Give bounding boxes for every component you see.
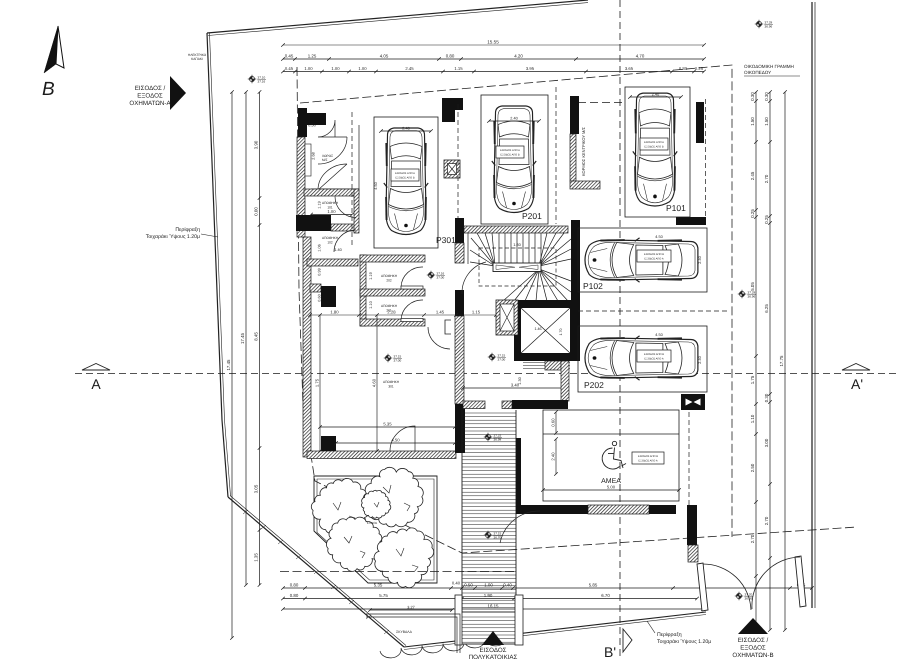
svg-text:3.95: 3.95 [526, 66, 535, 71]
svg-text:2.50: 2.50 [750, 463, 755, 472]
svg-text:ΠΟΛΥΚΑΤΟΙΚΙΑΣ: ΠΟΛΥΚΑΤΟΙΚΙΑΣ [469, 654, 518, 659]
svg-text:A': A' [851, 376, 863, 392]
svg-text:1.25: 1.25 [308, 53, 317, 58]
svg-text:Περίφραξη: Περίφραξη [657, 632, 682, 638]
svg-text:0.45: 0.45 [285, 66, 294, 71]
svg-text:0.50: 0.50 [308, 123, 317, 128]
svg-text:4.20: 4.20 [514, 53, 523, 58]
svg-text:0.30: 0.30 [764, 92, 769, 101]
svg-text:4.70: 4.70 [636, 53, 645, 58]
svg-text:1.60: 1.60 [513, 243, 520, 247]
svg-text:P202: P202 [584, 380, 604, 390]
svg-text:Τοιχαράκι Ύψους 1.20μ: Τοιχαράκι Ύψους 1.20μ [146, 234, 200, 240]
svg-text:ΑΠΟΘΗΚΗ: ΑΠΟΘΗΚΗ [381, 304, 398, 308]
svg-text:1.35: 1.35 [254, 553, 259, 562]
svg-text:2.68: 2.68 [312, 152, 316, 159]
svg-text:0.60: 0.60 [550, 418, 555, 427]
svg-text:3.05: 3.05 [254, 484, 259, 493]
svg-text:ΕΞΟΔΟΣ: ΕΞΟΔΟΣ [740, 645, 766, 652]
svg-text:2.40: 2.40 [550, 452, 555, 461]
svg-text:1.50: 1.50 [750, 117, 755, 126]
svg-text:17.75: 17.75 [779, 355, 784, 367]
svg-text:0.40: 0.40 [503, 582, 512, 587]
svg-text:37.00: 37.00 [498, 357, 506, 361]
svg-text:ΕΙΣΟΔΟΣ: ΕΙΣΟΔΟΣ [480, 647, 507, 654]
svg-text:P102: P102 [583, 281, 603, 291]
svg-text:1.10: 1.10 [369, 301, 373, 308]
svg-text:6.70: 6.70 [601, 593, 610, 598]
svg-text:0.80: 0.80 [290, 582, 299, 587]
svg-text:ΕΞΟΔΟΣ: ΕΞΟΔΟΣ [137, 93, 163, 100]
svg-text:0.99: 0.99 [318, 268, 322, 275]
svg-text:1.06: 1.06 [318, 244, 322, 251]
svg-text:2.45: 2.45 [405, 66, 414, 71]
svg-text:1.15: 1.15 [454, 66, 463, 71]
svg-text:0.50: 0.50 [464, 582, 473, 587]
svg-text:4.05: 4.05 [380, 53, 389, 58]
svg-text:B: B [42, 79, 55, 100]
svg-text:1.90: 1.90 [484, 593, 493, 598]
svg-text:ΚΑΠΑΚΙ: ΚΑΠΑΚΙ [191, 57, 203, 61]
svg-text:0.60: 0.60 [318, 294, 322, 301]
svg-text:2.40: 2.40 [652, 93, 659, 97]
svg-text:1.46: 1.46 [535, 327, 542, 331]
svg-text:1.00: 1.00 [484, 582, 493, 587]
svg-text:3.00: 3.00 [764, 438, 769, 447]
svg-text:ΟΧΗΜΑΤΩΝ-Β: ΟΧΗΜΑΤΩΝ-Β [732, 652, 773, 659]
svg-text:15.55: 15.55 [487, 39, 499, 44]
svg-text:1.19: 1.19 [369, 272, 373, 279]
svg-text:Τοιχαράκι Ύψους 1.20μ: Τοιχαράκι Ύψους 1.20μ [657, 639, 711, 645]
svg-text:ΕΞΟΔΟΣ ΑΠΟ Α: ΕΞΟΔΟΣ ΑΠΟ Α [638, 460, 657, 463]
svg-text:Περίφραξη: Περίφραξη [175, 227, 200, 233]
svg-text:ΕΙΣΟΔΟΣ /: ΕΙΣΟΔΟΣ / [738, 637, 769, 644]
svg-text:0.30: 0.30 [750, 92, 755, 101]
svg-text:ΕΙΣΟΔΟΣ ΑΠΟ Β: ΕΙΣΟΔΟΣ ΑΠΟ Β [644, 253, 664, 256]
svg-text:36.96: 36.96 [765, 24, 773, 28]
svg-text:1.00: 1.00 [358, 66, 367, 71]
svg-text:ΕΞΟΔΟΣ ΑΠΟ Β: ΕΞΟΔΟΣ ΑΠΟ Β [500, 154, 520, 157]
svg-text:ΕΞΟΔΟΣ ΑΠΟ Α: ΕΞΟΔΟΣ ΑΠΟ Α [644, 258, 663, 261]
svg-text:ΚΗΠΟΣ: ΚΗΠΟΣ [367, 521, 378, 525]
svg-text:ΕΞΟΔΟΣ ΑΠΟ Β: ΕΞΟΔΟΣ ΑΠΟ Β [644, 146, 664, 149]
svg-text:ΕΙΣΟΔΟΣ ΑΠΟ Β: ΕΙΣΟΔΟΣ ΑΠΟ Β [644, 353, 664, 356]
svg-text:ΟΙΚΟΠΕΔΟΥ: ΟΙΚΟΠΕΔΟΥ [744, 70, 771, 75]
svg-text:ΕΞΟΔΟΣ ΑΠΟ Β: ΕΞΟΔΟΣ ΑΠΟ Β [395, 177, 415, 180]
svg-text:36.95: 36.95 [745, 596, 753, 600]
svg-text:202: 202 [386, 279, 392, 283]
svg-text:ΕΙΣΟΔΟΣ /: ΕΙΣΟΔΟΣ / [135, 85, 166, 92]
svg-text:4.50: 4.50 [655, 235, 662, 239]
svg-text:0.25: 0.25 [750, 209, 755, 218]
svg-text:1.15: 1.15 [472, 310, 481, 315]
svg-text:0.30: 0.30 [764, 393, 769, 402]
svg-text:5.35: 5.35 [383, 422, 392, 427]
svg-text:ΟΧΗΜΑΤΩΝ-Α: ΟΧΗΜΑΤΩΝ-Α [129, 100, 171, 107]
svg-text:0.40: 0.40 [452, 581, 461, 586]
svg-text:ΑΠΟΘΗΚΗ: ΑΠΟΘΗΚΗ [322, 236, 339, 240]
svg-text:3.27: 3.27 [407, 606, 414, 610]
svg-text:5.85: 5.85 [589, 582, 598, 587]
svg-text:301: 301 [388, 385, 394, 389]
svg-text:ΣΚΥΒΑΛΑ: ΣΚΥΒΑΛΑ [396, 630, 412, 634]
svg-text:1.70: 1.70 [559, 329, 563, 336]
svg-text:0.45: 0.45 [285, 53, 294, 58]
svg-text:2.40: 2.40 [698, 356, 702, 363]
svg-text:5.00: 5.00 [607, 485, 616, 490]
svg-text:17.45: 17.45 [226, 359, 231, 371]
svg-text:37.16: 37.16 [258, 79, 266, 83]
svg-text:ΑΠΟΘΗΚΗ: ΑΠΟΘΗΚΗ [383, 380, 400, 384]
svg-text:6.25: 6.25 [764, 304, 769, 313]
svg-text:3.40: 3.40 [511, 383, 520, 388]
svg-text:0.25: 0.25 [764, 215, 769, 224]
svg-text:1.45: 1.45 [436, 310, 445, 315]
svg-text:ΟΙΚΟΔΟΜΙΚΗ ΓΡΑΜΜΗ: ΟΙΚΟΔΟΜΙΚΗ ΓΡΑΜΜΗ [744, 64, 794, 69]
svg-text:P101: P101 [666, 203, 686, 213]
svg-text:2.70: 2.70 [750, 534, 755, 543]
svg-text:1.10: 1.10 [750, 414, 755, 423]
svg-text:1.75: 1.75 [750, 375, 755, 384]
svg-text:4.50: 4.50 [391, 438, 400, 443]
svg-text:0.80: 0.80 [446, 53, 455, 58]
svg-text:2.40: 2.40 [698, 256, 702, 263]
svg-text:102: 102 [327, 241, 333, 245]
svg-text:36.98: 36.98 [494, 437, 502, 441]
svg-text:4.50: 4.50 [374, 182, 378, 189]
svg-text:37.00: 37.00 [437, 275, 445, 279]
svg-text:17.45: 17.45 [240, 332, 245, 344]
svg-text:ΕΞΟΔΟΣ ΑΠΟ Α: ΕΞΟΔΟΣ ΑΠΟ Α [644, 358, 663, 361]
svg-text:3.65: 3.65 [625, 66, 634, 71]
svg-text:5.75: 5.75 [379, 593, 388, 598]
svg-text:ΑΠΟΘΗΚΗ: ΑΠΟΘΗΚΗ [381, 274, 398, 278]
svg-text:2.40: 2.40 [510, 117, 517, 121]
svg-text:0.80: 0.80 [679, 66, 688, 71]
svg-text:36.96: 36.96 [748, 294, 756, 298]
svg-text:ΕΙΣΟΔΟΣ ΑΠΟ Α: ΕΙΣΟΔΟΣ ΑΠΟ Α [644, 141, 664, 144]
svg-text:4.50: 4.50 [655, 333, 662, 337]
svg-text:A: A [91, 376, 101, 392]
svg-text:Μ/Σ: Μ/Σ [322, 158, 328, 162]
svg-text:4.60: 4.60 [371, 378, 376, 387]
svg-text:0.25: 0.25 [695, 66, 704, 71]
svg-text:2.70: 2.70 [764, 516, 769, 525]
svg-text:36.70: 36.70 [494, 535, 502, 539]
svg-text:1.00: 1.00 [331, 66, 340, 71]
svg-text:1.00: 1.00 [304, 66, 313, 71]
svg-text:P301: P301 [436, 235, 456, 245]
svg-text:1.50: 1.50 [764, 117, 769, 126]
svg-text:1.19: 1.19 [318, 201, 322, 208]
svg-text:8.45: 8.45 [254, 332, 259, 341]
svg-text:3.90: 3.90 [254, 140, 259, 149]
svg-text:P201: P201 [522, 211, 542, 221]
svg-text:0.00: 0.00 [254, 207, 259, 216]
svg-text:2.28: 2.28 [387, 310, 396, 315]
svg-text:2.70: 2.70 [764, 174, 769, 183]
svg-text:1.75: 1.75 [314, 378, 319, 387]
svg-text:ΕΙΣΟΔΟΣ ΑΠΟ Α: ΕΙΣΟΔΟΣ ΑΠΟ Α [395, 172, 415, 175]
svg-text:37.00: 37.00 [394, 358, 402, 362]
svg-text:ΚΟΡΜΟΣ ΚΕΝΤΡΙΚΟΥ Μ/Σ: ΚΟΡΜΟΣ ΚΕΝΤΡΙΚΟΥ Μ/Σ [581, 127, 586, 176]
svg-text:B': B' [604, 644, 616, 659]
svg-text:1.80: 1.80 [330, 310, 339, 315]
svg-text:1.00: 1.00 [327, 209, 336, 214]
svg-text:2.40: 2.40 [402, 127, 409, 131]
svg-text:ΕΙΣΟΔΟΣ ΑΠΟ Β: ΕΙΣΟΔΟΣ ΑΠΟ Β [638, 455, 658, 458]
svg-text:ΕΙΣΟΔΟΣ ΑΠΟ Α: ΕΙΣΟΔΟΣ ΑΠΟ Α [500, 149, 520, 152]
svg-text:0.80: 0.80 [290, 593, 299, 598]
svg-text:1.40: 1.40 [334, 248, 341, 252]
svg-text:2.45: 2.45 [750, 171, 755, 180]
